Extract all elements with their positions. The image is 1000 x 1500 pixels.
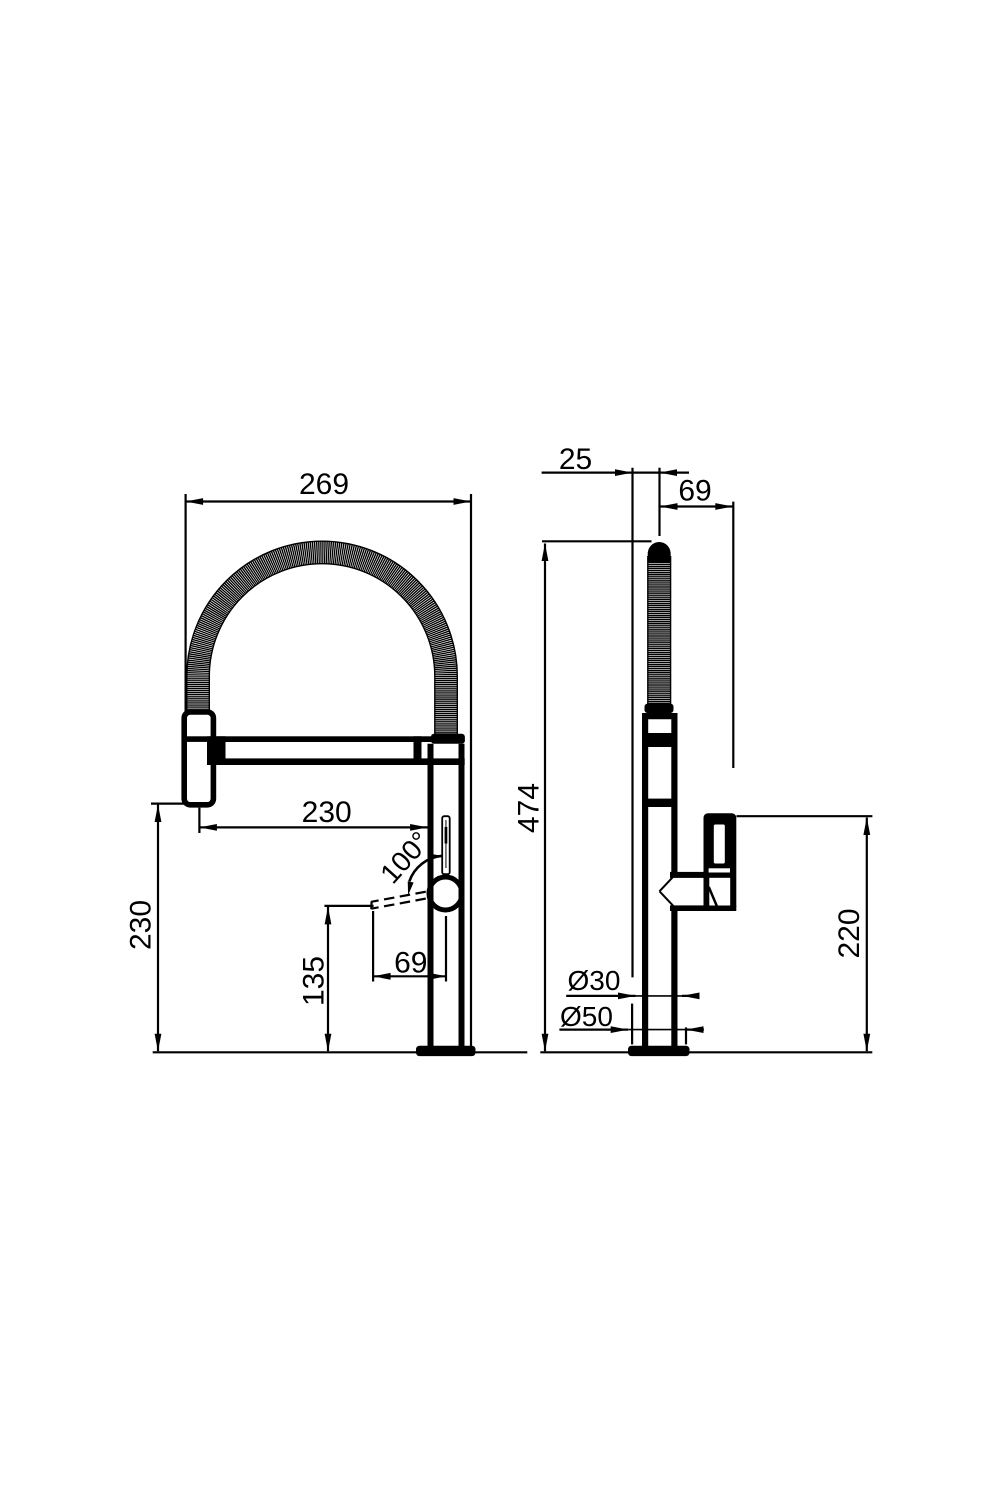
svg-text:474: 474: [513, 783, 546, 833]
svg-text:Ø30: Ø30: [568, 965, 621, 996]
svg-text:69: 69: [678, 475, 711, 508]
svg-text:Ø50: Ø50: [560, 1001, 613, 1032]
svg-text:135: 135: [298, 956, 331, 1006]
svg-text:230: 230: [125, 900, 158, 950]
svg-text:220: 220: [833, 908, 866, 958]
svg-text:269: 269: [299, 468, 349, 501]
svg-text:230: 230: [302, 796, 352, 829]
svg-text:69: 69: [394, 947, 427, 980]
svg-text:25: 25: [559, 443, 592, 476]
